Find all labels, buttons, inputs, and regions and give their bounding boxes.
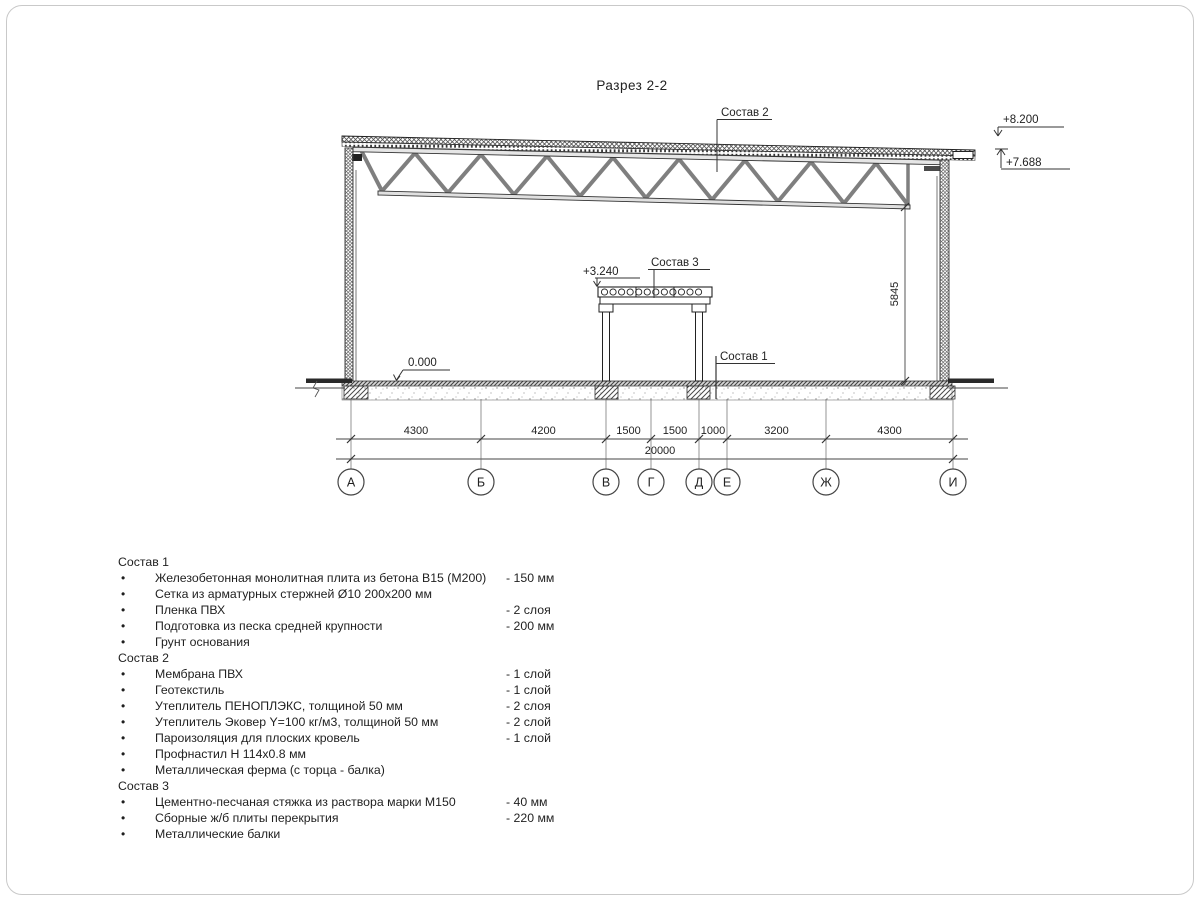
bullet-icon: • bbox=[121, 730, 125, 746]
note-item: •Грунт основания bbox=[118, 634, 588, 650]
vertical-dim-value: 5845 bbox=[889, 282, 901, 306]
bullet-icon: • bbox=[121, 618, 125, 634]
drawing-sheet: Разрез 2-2 bbox=[0, 0, 1200, 900]
axis-label: В bbox=[602, 476, 610, 490]
note-item-text: Профнастил Н 114х0.8 мм bbox=[155, 747, 306, 761]
foundation-pad-right bbox=[930, 386, 955, 399]
note-item: •Мембрана ПВХ- 1 слой bbox=[118, 666, 588, 682]
note-item: •Утеплитель ПЕНОПЛЭКС, толщиной 50 мм- 2… bbox=[118, 698, 588, 714]
right-base-plate bbox=[948, 379, 994, 384]
bullet-icon: • bbox=[121, 666, 125, 682]
break-symbol bbox=[313, 381, 319, 397]
bullet-icon: • bbox=[121, 698, 125, 714]
note-item: •Пленка ПВХ- 2 слоя bbox=[118, 602, 588, 618]
note-item-text: Грунт основания bbox=[155, 635, 250, 649]
note-item-text: Металлические балки bbox=[155, 827, 280, 841]
bullet-icon: • bbox=[121, 634, 125, 650]
note-item-text: Сборные ж/б плиты перекрытия bbox=[155, 811, 339, 825]
note-item: •Сетка из арматурных стержней Ø10 200х20… bbox=[118, 586, 588, 602]
level-mark-mezzanine: +3.240 bbox=[583, 266, 640, 287]
vertical-dimension: 5845 bbox=[889, 203, 909, 385]
note-item-value: - 1 слой bbox=[506, 730, 551, 746]
floor-slab bbox=[295, 379, 1008, 401]
axis-label: А bbox=[347, 476, 356, 490]
note-item-text: Цементно-песчаная стяжка из раствора мар… bbox=[155, 795, 456, 809]
total-dim-value: 20000 bbox=[645, 445, 676, 457]
truss-right-support bbox=[924, 166, 940, 171]
note-item-value: - 2 слоя bbox=[506, 698, 551, 714]
leader-sostav3-label: Состав 3 bbox=[651, 257, 699, 269]
note-item-text: Утеплитель ПЕНОПЛЭКС, толщиной 50 мм bbox=[155, 699, 403, 713]
right-wall bbox=[940, 160, 949, 381]
bullet-icon: • bbox=[121, 762, 125, 778]
note-item-value: - 1 слой bbox=[506, 682, 551, 698]
axis-label: Б bbox=[477, 476, 485, 490]
level-mark-roof-edge: +7.688 bbox=[995, 149, 1070, 169]
note-item-value: - 1 слой bbox=[506, 666, 551, 682]
leader-sostav2-label: Состав 2 bbox=[721, 107, 769, 119]
axis-label: Г bbox=[648, 476, 655, 490]
left-base-plate bbox=[306, 379, 352, 384]
note-item: •Пароизоляция для плоских кровель- 1 сло… bbox=[118, 730, 588, 746]
segment-dim-value: 1000 bbox=[701, 425, 725, 437]
bullet-icon: • bbox=[121, 602, 125, 618]
floor-sand-band bbox=[342, 386, 952, 400]
truss-left-support bbox=[352, 154, 362, 161]
section-drawing: Разрез 2-2 bbox=[0, 0, 1200, 560]
note-item-value: - 220 мм bbox=[506, 810, 554, 826]
level-mark-floor: 0.000 bbox=[394, 357, 451, 381]
note-item-text: Пленка ПВХ bbox=[155, 603, 225, 617]
note-item-text: Металлическая ферма (с торца - балка) bbox=[155, 763, 385, 777]
note-section-header: Состав 1 bbox=[118, 554, 588, 570]
segment-dim-value: 4300 bbox=[404, 425, 428, 437]
roof-end-cap bbox=[953, 152, 973, 159]
bullet-icon: • bbox=[121, 682, 125, 698]
mezzanine-slab bbox=[598, 287, 712, 297]
leader-sostav1-label: Состав 1 bbox=[720, 351, 768, 363]
note-item-text: Железобетонная монолитная плита из бетон… bbox=[155, 571, 486, 585]
bullet-icon: • bbox=[121, 794, 125, 810]
floor-concrete-band bbox=[342, 381, 952, 386]
composition-notes: Состав 1•Железобетонная монолитная плита… bbox=[118, 554, 588, 842]
right-column bbox=[696, 312, 703, 381]
dimension-chain: 20000 4300420015001500100032004300 АБВГД… bbox=[336, 399, 968, 495]
note-item: •Металлическая ферма (с торца - балка) bbox=[118, 762, 588, 778]
foundation-pad-col-left bbox=[595, 386, 618, 399]
axis-label: Д bbox=[695, 476, 704, 490]
segment-dim-value: 1500 bbox=[663, 425, 687, 437]
note-item: •Металлические балки bbox=[118, 826, 588, 842]
note-item: •Подготовка из песка средней крупности- … bbox=[118, 618, 588, 634]
foundation-pad-left bbox=[344, 386, 368, 399]
note-item: •Геотекстиль- 1 слой bbox=[118, 682, 588, 698]
segment-dim-value: 1500 bbox=[616, 425, 640, 437]
note-item: •Сборные ж/б плиты перекрытия- 220 мм bbox=[118, 810, 588, 826]
level-value-mezzanine: +3.240 bbox=[583, 266, 619, 278]
note-item: •Железобетонная монолитная плита из бето… bbox=[118, 570, 588, 586]
bullet-icon: • bbox=[121, 746, 125, 762]
note-item-value: - 40 мм bbox=[506, 794, 548, 810]
bullet-icon: • bbox=[121, 586, 125, 602]
axis-bubbles: АБВГДЕЖИ bbox=[338, 469, 966, 495]
left-column bbox=[603, 312, 610, 381]
note-item-value: - 2 слоя bbox=[506, 602, 551, 618]
note-item-value: - 200 мм bbox=[506, 618, 554, 634]
level-value-floor: 0.000 bbox=[408, 357, 437, 369]
note-item-text: Геотекстиль bbox=[155, 683, 224, 697]
note-section-header: Состав 2 bbox=[118, 650, 588, 666]
note-item-text: Мембрана ПВХ bbox=[155, 667, 243, 681]
bullet-icon: • bbox=[121, 714, 125, 730]
dim-generated: 4300420015001500100032004300 bbox=[347, 399, 957, 469]
note-item: •Цементно-песчаная стяжка из раствора ма… bbox=[118, 794, 588, 810]
segment-dim-value: 3200 bbox=[764, 425, 788, 437]
note-item-value: - 150 мм bbox=[506, 570, 554, 586]
axis-label: И bbox=[949, 476, 958, 490]
level-value-roof-edge: +7.688 bbox=[1006, 157, 1042, 169]
axis-label: Е bbox=[723, 476, 731, 490]
drawing-title: Разрез 2-2 bbox=[596, 78, 667, 93]
foundation-pad-col-right bbox=[687, 386, 710, 399]
note-item-value: - 2 слой bbox=[506, 714, 551, 730]
note-item-text: Подготовка из песка средней крупности bbox=[155, 619, 382, 633]
note-section-header: Состав 3 bbox=[118, 778, 588, 794]
note-item-text: Утеплитель Эковер Y=100 кг/м3, толщиной … bbox=[155, 715, 438, 729]
left-column-capital bbox=[599, 304, 613, 312]
mezzanine-beam bbox=[600, 297, 710, 304]
segment-dim-value: 4200 bbox=[531, 425, 555, 437]
left-wall bbox=[345, 148, 353, 381]
mezzanine bbox=[598, 287, 712, 381]
note-item-text: Сетка из арматурных стержней Ø10 200х200… bbox=[155, 587, 432, 601]
level-value-roof-top: +8.200 bbox=[1003, 114, 1039, 126]
note-item-text: Пароизоляция для плоских кровель bbox=[155, 731, 360, 745]
segment-dim-value: 4300 bbox=[877, 425, 901, 437]
right-column-capital bbox=[692, 304, 706, 312]
bullet-icon: • bbox=[121, 826, 125, 842]
level-mark-roof-top: +8.200 bbox=[994, 114, 1064, 136]
bullet-icon: • bbox=[121, 810, 125, 826]
bullet-icon: • bbox=[121, 570, 125, 586]
note-item: •Профнастил Н 114х0.8 мм bbox=[118, 746, 588, 762]
axis-label: Ж bbox=[820, 476, 832, 490]
note-item: •Утеплитель Эковер Y=100 кг/м3, толщиной… bbox=[118, 714, 588, 730]
